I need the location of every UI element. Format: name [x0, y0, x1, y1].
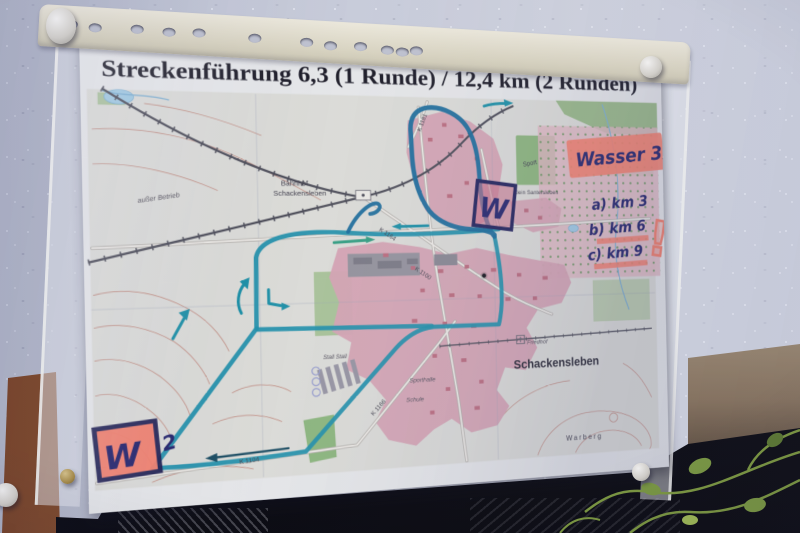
sleeve-hole	[248, 33, 262, 43]
sleeve-hole	[88, 23, 102, 33]
pushpin-top-left	[46, 8, 76, 44]
sleeve-hole	[324, 41, 338, 51]
route-map: Bahnhof Schackensleben außer Betrieb Kle…	[79, 30, 669, 514]
photo-scene: Bahnhof Schackensleben außer Betrieb Kle…	[0, 0, 800, 533]
sleeve-hole	[300, 38, 314, 48]
sleeve-hole	[410, 46, 424, 56]
paper-tilt-wrap: Bahnhof Schackensleben außer Betrieb Kle…	[79, 30, 669, 514]
sleeve-hole	[192, 28, 206, 38]
sleeve-hole	[381, 45, 395, 55]
pushpin-bottom-right	[632, 463, 650, 481]
lace-curtain-2	[470, 498, 680, 533]
sleeve-hole	[130, 24, 144, 34]
pushpin-top-right	[640, 56, 662, 78]
lace-curtain	[118, 508, 268, 533]
sleeve-hole	[396, 47, 410, 57]
sleeve-hole	[354, 42, 368, 52]
pushpin-gold	[60, 469, 75, 484]
sleeve-hole	[162, 27, 176, 37]
paper-sheen	[79, 30, 669, 514]
